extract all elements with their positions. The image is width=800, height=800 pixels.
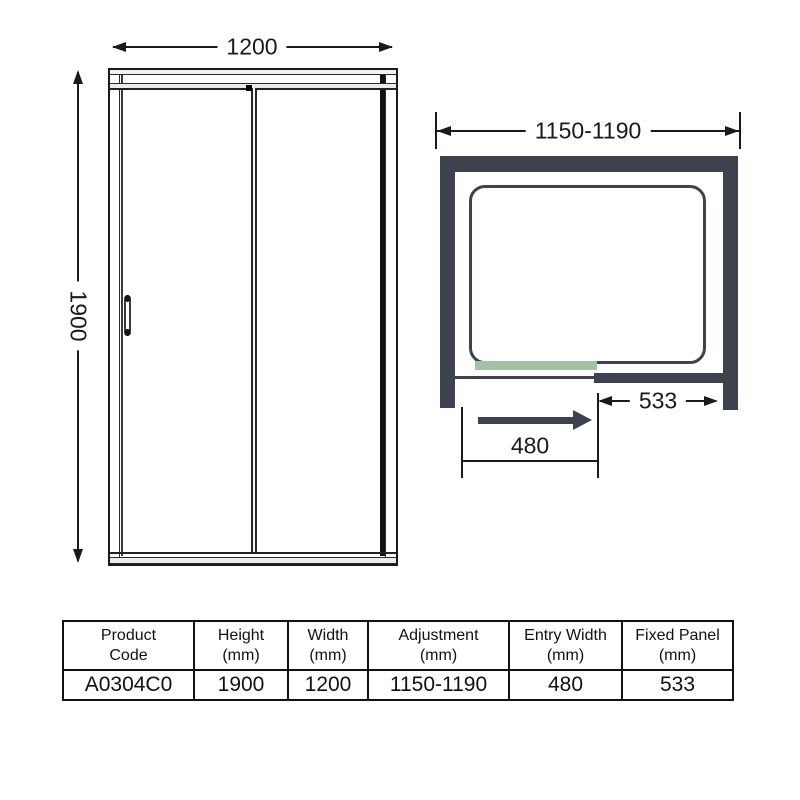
cell-entry-width: 480 xyxy=(509,670,622,700)
cell-adjustment: 1150-1190 xyxy=(368,670,509,700)
fixed-panel-dimension-label: 533 xyxy=(630,388,686,415)
top-rail-line-1 xyxy=(110,74,396,75)
adjustment-dimension-label: 1150-1190 xyxy=(526,118,651,145)
col-header-width: Width (mm) xyxy=(288,621,368,670)
spec-table-data-row: A0304C0 1900 1200 1150-1190 480 533 xyxy=(63,670,733,700)
col-header-fixed-panel: Fixed Panel (mm) xyxy=(622,621,733,670)
col-header-entry-width: Entry Width (mm) xyxy=(509,621,622,670)
cell-product-code: A0304C0 xyxy=(63,670,194,700)
header-line: Code xyxy=(64,646,193,666)
right-wall xyxy=(723,156,738,410)
arrow-left-icon xyxy=(112,42,126,52)
right-post-line xyxy=(385,70,386,564)
width-dimension-label: 1200 xyxy=(217,34,286,61)
shower-tray-outline xyxy=(469,185,706,364)
arrow-right-icon xyxy=(725,126,739,136)
arrow-right-icon xyxy=(379,42,393,52)
slide-direction-arrowhead-icon xyxy=(573,410,592,430)
arrow-down-icon xyxy=(73,549,83,563)
spec-table-header-row: Product Code Height (mm) Width (mm) Adju… xyxy=(63,621,733,670)
cell-height: 1900 xyxy=(194,670,288,700)
header-line: Adjustment xyxy=(369,626,508,646)
col-header-adjustment: Adjustment (mm) xyxy=(368,621,509,670)
arrow-up-icon xyxy=(73,70,83,84)
left-door-edge-line xyxy=(121,74,123,556)
bottom-rail-line-1 xyxy=(110,552,396,554)
door-handle xyxy=(124,295,131,336)
header-line: (mm) xyxy=(195,646,287,666)
arrow-left-icon xyxy=(598,396,612,406)
sliding-panel-green xyxy=(475,361,597,370)
fixed-glass-edge-bar xyxy=(380,74,385,556)
shower-door-technical-drawing: 1200 1900 1150-1190 xyxy=(0,0,800,800)
fixed-panel-bar xyxy=(594,373,726,383)
entry-width-dimension-label: 480 xyxy=(502,433,558,460)
header-line: Entry Width xyxy=(510,626,621,646)
header-line: Fixed Panel xyxy=(623,626,732,646)
sliding-door-edge xyxy=(251,88,257,552)
entry-tick-right xyxy=(597,393,599,478)
arrow-left-icon xyxy=(437,126,451,136)
left-post-line xyxy=(119,70,120,564)
header-line: Height xyxy=(195,626,287,646)
entry-width-dimension-line xyxy=(461,460,599,462)
col-header-product-code: Product Code xyxy=(63,621,194,670)
left-wall xyxy=(440,156,455,408)
slide-direction-arrow xyxy=(478,417,573,424)
spec-table: Product Code Height (mm) Width (mm) Adju… xyxy=(62,620,734,701)
header-line: Width xyxy=(289,626,367,646)
header-line: (mm) xyxy=(289,646,367,666)
cell-width: 1200 xyxy=(288,670,368,700)
door-roller-mark xyxy=(246,85,252,91)
top-wall xyxy=(440,156,738,172)
height-dimension-label: 1900 xyxy=(65,281,92,350)
header-line: (mm) xyxy=(510,646,621,666)
bottom-rail-line-3 xyxy=(110,563,396,564)
arrow-right-icon xyxy=(704,396,718,406)
header-line: (mm) xyxy=(369,646,508,666)
col-header-height: Height (mm) xyxy=(194,621,288,670)
header-line: (mm) xyxy=(623,646,732,666)
entry-tick-left xyxy=(461,407,463,478)
cell-fixed-panel: 533 xyxy=(622,670,733,700)
header-line: Product xyxy=(64,626,193,646)
